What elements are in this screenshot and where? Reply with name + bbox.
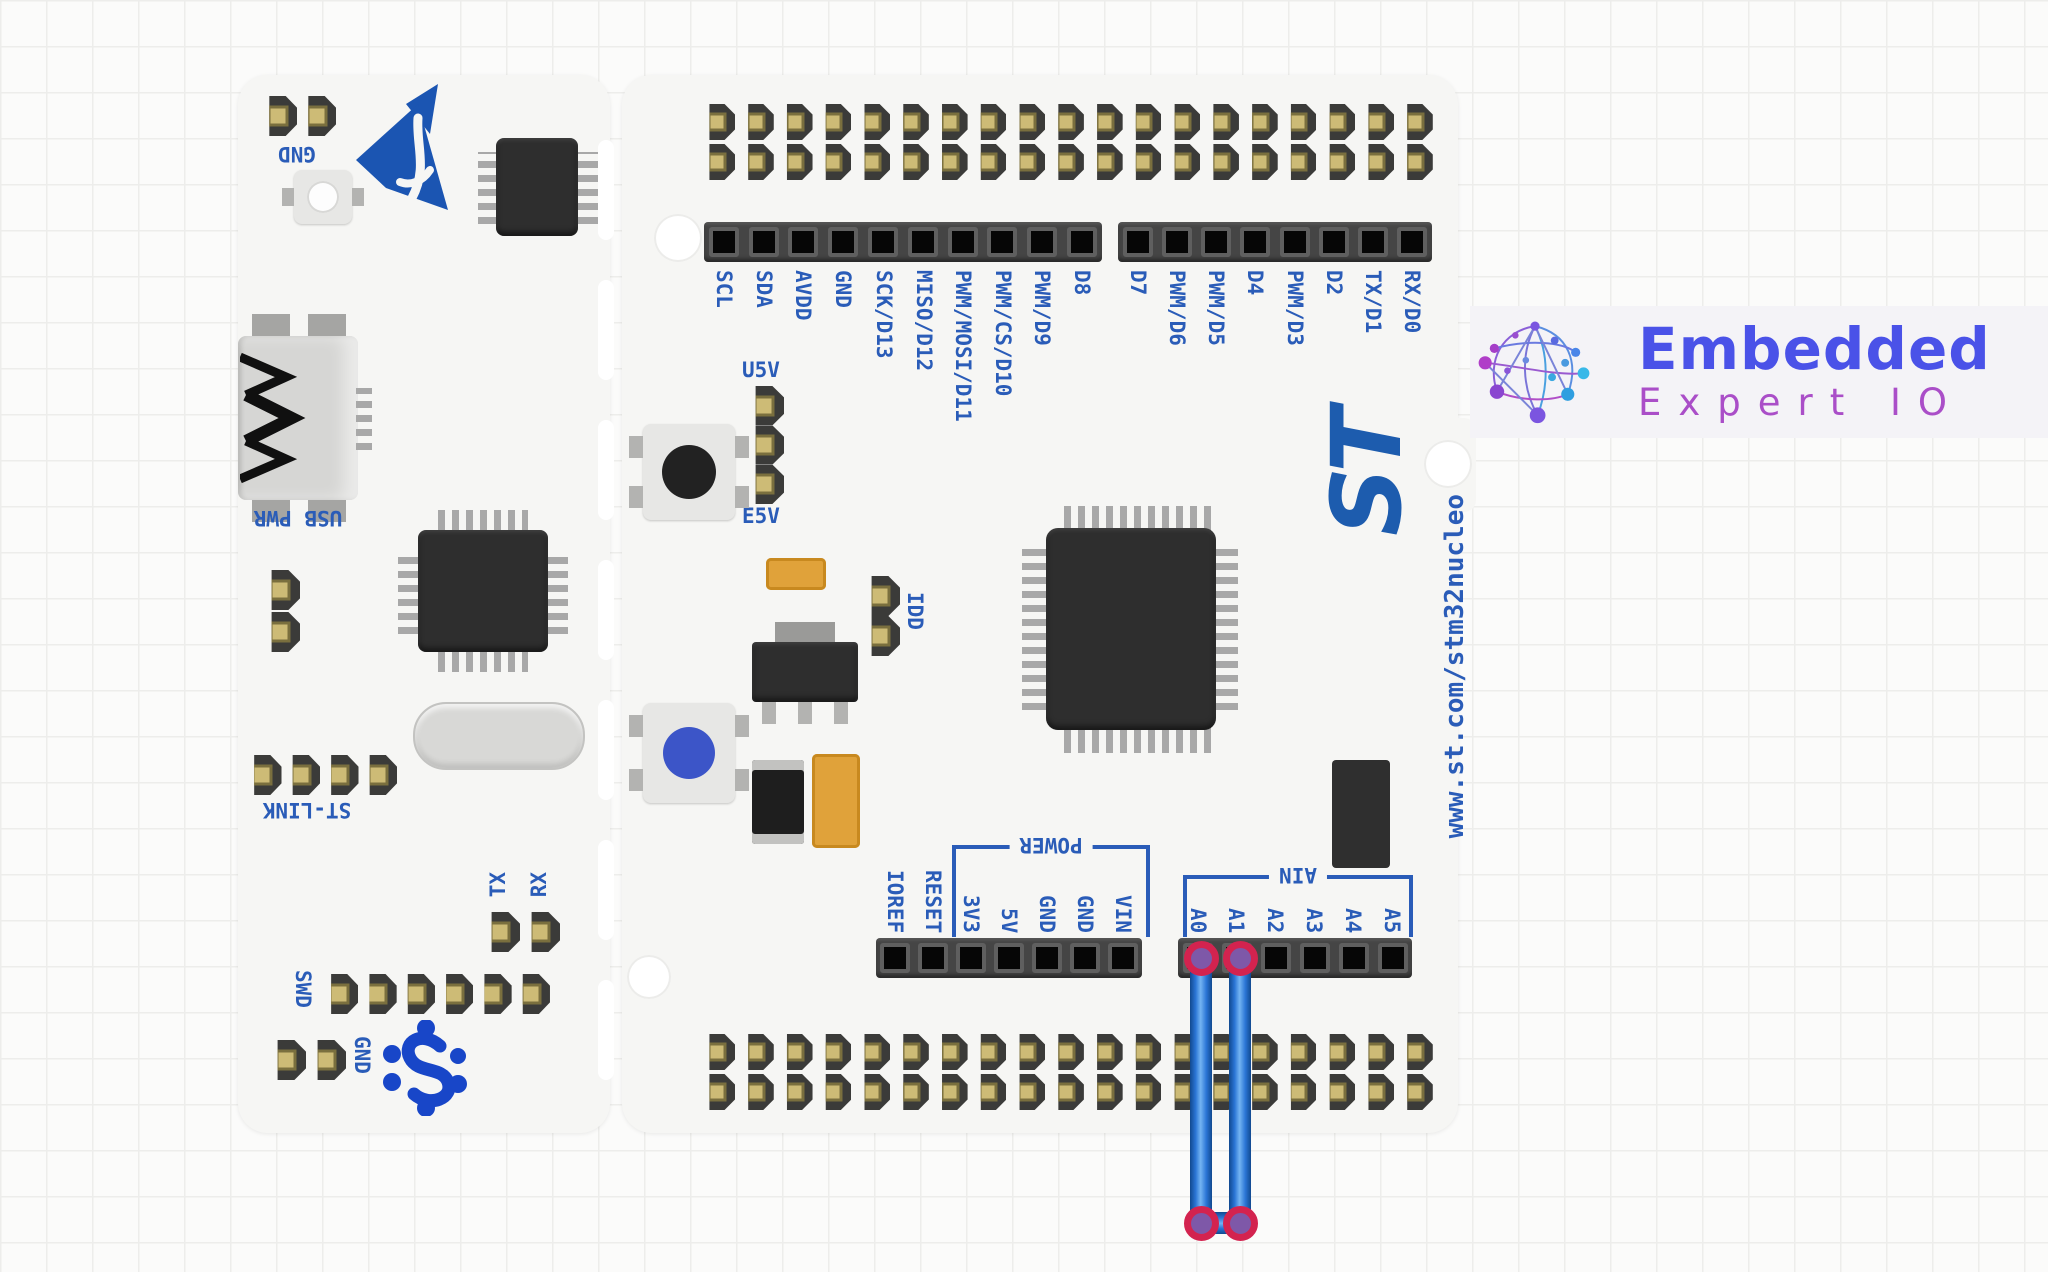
header-socket[interactable]: [1162, 227, 1192, 257]
button-pad: [735, 715, 749, 737]
pin-label-a5: A5: [1380, 908, 1404, 933]
header-pin[interactable]: [815, 1034, 851, 1070]
pin-label-d1: TX/D1: [1361, 270, 1385, 333]
rx-label: RX: [527, 872, 551, 897]
mounting-hole: [627, 955, 671, 999]
header-socket[interactable]: [1319, 227, 1349, 257]
board-perforation: [598, 980, 614, 1080]
header-pin[interactable]: [1319, 1074, 1355, 1110]
header-socket[interactable]: [1067, 227, 1097, 257]
header-pin[interactable]: [699, 104, 735, 140]
header-socket[interactable]: [749, 227, 779, 257]
brand-subtitle: Expert IO: [1638, 381, 1991, 425]
pin-label-a4: A4: [1341, 908, 1365, 933]
analog-group-bracket: AIN: [1183, 875, 1413, 937]
header-pin[interactable]: [777, 144, 813, 180]
tantalum-capacitor[interactable]: [812, 754, 860, 848]
header-pin[interactable]: [932, 1074, 968, 1110]
header-socket[interactable]: [987, 227, 1017, 257]
mounting-hole: [654, 214, 702, 262]
header-socket[interactable]: [908, 227, 938, 257]
pin-label-gnd: GND: [831, 270, 855, 308]
chip-body[interactable]: [1046, 528, 1216, 730]
header-pin[interactable]: [738, 1034, 774, 1070]
chip-body[interactable]: [496, 138, 578, 236]
user-button[interactable]: [643, 424, 735, 520]
pin-label-5v: 5V: [997, 908, 1021, 933]
pin-label-d13: SCK/D13: [872, 270, 896, 359]
regulator-body[interactable]: [752, 642, 858, 702]
header-pin[interactable]: [699, 144, 735, 180]
header-pin[interactable]: [970, 144, 1006, 180]
header-socket[interactable]: [788, 227, 818, 257]
header-pin[interactable]: [243, 755, 282, 795]
header-socket[interactable]: [709, 227, 739, 257]
board-perforation: [598, 420, 614, 520]
usb-body[interactable]: [238, 336, 358, 500]
header-pin[interactable]: [1358, 1034, 1394, 1070]
pin-label-d6: PWM/D6: [1165, 270, 1189, 346]
header-pin[interactable]: [1280, 104, 1316, 140]
header-pin[interactable]: [480, 912, 520, 952]
tx-label: TX: [486, 872, 510, 897]
header-socket[interactable]: [828, 227, 858, 257]
header-pin[interactable]: [358, 974, 396, 1014]
swd-label: SWD: [291, 970, 315, 1008]
usb-pwr-label: USB PWR: [242, 506, 354, 530]
header-socket[interactable]: [1123, 227, 1153, 257]
header-pin[interactable]: [854, 144, 890, 180]
header-pin[interactable]: [397, 974, 435, 1014]
header-socket[interactable]: [948, 227, 978, 257]
header-pin[interactable]: [893, 144, 929, 180]
pin-label-vin: VIN: [1111, 895, 1135, 933]
pin-label-reset: RESET: [921, 870, 945, 933]
pin-label-avdd: AVDD: [791, 270, 815, 321]
stlink-reset-button[interactable]: [294, 170, 352, 224]
header-pin[interactable]: [893, 104, 929, 140]
pin-label-a2: A2: [1263, 908, 1287, 933]
pin-label-a3: A3: [1302, 908, 1326, 933]
header-pin[interactable]: [306, 1040, 346, 1080]
button-pad: [735, 486, 749, 508]
header-pin[interactable]: [1087, 144, 1123, 180]
aux-header[interactable]: [260, 570, 300, 652]
s-molecule-icon: [380, 1020, 470, 1116]
swd-header[interactable]: [320, 974, 550, 1014]
header-socket[interactable]: [956, 943, 986, 973]
header-pin[interactable]: [1203, 104, 1239, 140]
header-pin[interactable]: [1319, 144, 1355, 180]
gnd-top-header[interactable]: [258, 96, 336, 136]
header-pin[interactable]: [282, 755, 321, 795]
usb-pins: [356, 388, 372, 450]
header-pin[interactable]: [854, 104, 890, 140]
button-pad: [352, 188, 364, 206]
chip-legs: [546, 550, 568, 634]
button-pad: [629, 436, 643, 458]
embedded-expert-io-logo: Embedded Expert IO: [1470, 306, 2048, 438]
header-pin[interactable]: [970, 1034, 1006, 1070]
header-pin[interactable]: [1009, 1034, 1045, 1070]
header-pin[interactable]: [699, 1034, 735, 1070]
header-pin[interactable]: [260, 570, 300, 610]
header-socket[interactable]: [880, 943, 910, 973]
chip-legs: [438, 510, 528, 532]
header-pin[interactable]: [1009, 104, 1045, 140]
header-pin[interactable]: [738, 104, 774, 140]
brand-title: Embedded: [1638, 319, 1991, 379]
idd-header[interactable]: [860, 576, 900, 656]
header-pin[interactable]: [1048, 1034, 1084, 1070]
chip-legs: [1022, 548, 1048, 710]
jumper-wire-a0[interactable]: [1190, 952, 1212, 1234]
header-pin[interactable]: [1125, 1034, 1161, 1070]
header-pin[interactable]: [1397, 1074, 1433, 1110]
header-pin[interactable]: [1048, 1074, 1084, 1110]
pin-label-d7: D7: [1126, 270, 1150, 295]
header-pin[interactable]: [970, 104, 1006, 140]
jumper-wire-a1[interactable]: [1229, 952, 1251, 1234]
pin-label-gnd1: GND: [1035, 895, 1059, 933]
header-pin[interactable]: [777, 1074, 813, 1110]
chip-legs: [576, 152, 598, 224]
board-perforation: [598, 840, 614, 940]
header-pin[interactable]: [435, 974, 473, 1014]
header-socket[interactable]: [1300, 943, 1330, 973]
header-pin[interactable]: [932, 1034, 968, 1070]
header-socket[interactable]: [1358, 227, 1388, 257]
header-socket[interactable]: [1280, 227, 1310, 257]
header-socket[interactable]: [1378, 943, 1408, 973]
smd-capacitor[interactable]: [752, 760, 804, 844]
header-pin[interactable]: [320, 974, 358, 1014]
header-pin[interactable]: [1125, 1074, 1161, 1110]
pin-label-d8: D8: [1070, 270, 1094, 295]
header-pin[interactable]: [1048, 104, 1084, 140]
regulator-leg: [834, 702, 848, 724]
morpho-header-bottom-row1[interactable]: [699, 1034, 1433, 1070]
header-socket[interactable]: [1108, 943, 1138, 973]
stlink-label: ST-LINK: [240, 798, 374, 822]
header-pin[interactable]: [854, 1074, 890, 1110]
board-perforation: [598, 560, 614, 660]
header-pin[interactable]: [815, 144, 851, 180]
pin-label-3v3: 3V3: [959, 895, 983, 933]
header-pin[interactable]: [738, 1074, 774, 1110]
header-pin[interactable]: [860, 576, 900, 616]
button-cap[interactable]: [662, 445, 716, 499]
header-pin[interactable]: [815, 1074, 851, 1110]
pin-label-d9: PWM/D9: [1030, 270, 1054, 346]
header-pin[interactable]: [1048, 144, 1084, 180]
io-header-left[interactable]: [704, 222, 1102, 262]
header-pin[interactable]: [1087, 104, 1123, 140]
header-socket[interactable]: [1397, 227, 1427, 257]
morpho-header-top-row1[interactable]: [699, 104, 1433, 140]
header-pin[interactable]: [1087, 1034, 1123, 1070]
power-group-label: POWER: [1009, 833, 1092, 857]
header-socket[interactable]: [1339, 943, 1369, 973]
header-pin[interactable]: [932, 144, 968, 180]
pin-label-a1: A1: [1224, 908, 1248, 933]
power-header[interactable]: [876, 938, 1142, 978]
morpho-header-top-row2[interactable]: [699, 144, 1433, 180]
svg-text:ST: ST: [1311, 401, 1423, 536]
header-socket[interactable]: [1032, 943, 1062, 973]
workspace-canvas[interactable]: GND USB PWR: [0, 0, 2048, 1272]
header-pin[interactable]: [699, 1074, 735, 1110]
pin-label-scl: SCL: [712, 270, 736, 308]
chip-legs: [1064, 727, 1214, 753]
header-pin[interactable]: [1397, 144, 1433, 180]
idd-label: IDD: [903, 592, 927, 630]
board-perforation: [598, 140, 614, 240]
header-pin[interactable]: [1280, 144, 1316, 180]
header-pin[interactable]: [1164, 144, 1200, 180]
header-pin[interactable]: [860, 616, 900, 656]
header-pin[interactable]: [970, 1074, 1006, 1110]
chip-legs: [398, 550, 420, 634]
header-pin[interactable]: [520, 912, 560, 952]
wire-terminal-a0[interactable]: [1184, 941, 1219, 976]
header-pin[interactable]: [1358, 144, 1394, 180]
regulator-leg: [798, 702, 812, 724]
header-pin[interactable]: [1125, 144, 1161, 180]
button-pad: [735, 769, 749, 791]
usb-tab: [308, 314, 346, 338]
header-pin[interactable]: [815, 104, 851, 140]
header-pin[interactable]: [1358, 104, 1394, 140]
usb-tab: [252, 314, 290, 338]
wire-terminal-a1[interactable]: [1223, 941, 1258, 976]
crystal-oscillator[interactable]: [413, 702, 585, 770]
analog-group-label: AIN: [1269, 863, 1327, 887]
wire-terminal-bottom-left[interactable]: [1184, 1206, 1219, 1241]
header-pin[interactable]: [1242, 104, 1278, 140]
gnd-bottom-header[interactable]: [266, 1040, 346, 1080]
morpho-header-bottom-row2[interactable]: [699, 1074, 1433, 1110]
header-pin[interactable]: [320, 755, 359, 795]
header-pin[interactable]: [893, 1074, 929, 1110]
board-url-label: www.st.com/stm32nucleo: [1440, 494, 1470, 838]
mounting-hole: [1424, 440, 1472, 488]
header-pin[interactable]: [266, 1040, 306, 1080]
button-pad: [629, 486, 643, 508]
header-pin[interactable]: [1319, 1034, 1355, 1070]
u5v-label: U5V: [742, 358, 780, 382]
pin-label-d12: MISO/D12: [912, 270, 936, 371]
header-pin[interactable]: [893, 1034, 929, 1070]
pin-label-d11: PWM/MOSI/D11: [951, 270, 975, 422]
button-cap[interactable]: [663, 727, 715, 779]
board-perforation: [598, 280, 614, 380]
power-select-header[interactable]: [744, 386, 784, 504]
button-pad: [735, 436, 749, 458]
capacitor[interactable]: [766, 558, 826, 590]
header-pin[interactable]: [1087, 1074, 1123, 1110]
header-pin[interactable]: [1397, 1034, 1433, 1070]
header-pin[interactable]: [297, 96, 336, 136]
pin-label-sda: SDA: [752, 270, 776, 308]
pin-label-ioref: IOREF: [883, 870, 907, 933]
stlink-header[interactable]: [243, 755, 397, 795]
st-logo: ST: [1308, 328, 1424, 544]
txrx-header[interactable]: [480, 912, 560, 952]
header-socket[interactable]: [1201, 227, 1231, 257]
gnd-bottom-label: GND: [350, 1036, 374, 1074]
button-pad: [282, 188, 294, 206]
header-pin[interactable]: [744, 425, 784, 464]
wire-terminal-bottom-right[interactable]: [1223, 1206, 1258, 1241]
button-pad: [629, 769, 643, 791]
header-pin[interactable]: [738, 144, 774, 180]
bird-logo-icon: [352, 82, 460, 224]
header-pin[interactable]: [744, 386, 784, 425]
header-pin[interactable]: [1164, 104, 1200, 140]
pin-label-d0: RX/D0: [1400, 270, 1424, 333]
chip-legs: [438, 650, 528, 672]
pin-label-d10: PWM/CS/D10: [991, 270, 1015, 396]
io-header-right[interactable]: [1118, 222, 1432, 262]
pin-label-gnd2: GND: [1073, 895, 1097, 933]
pin-label-d2: D2: [1322, 270, 1346, 295]
header-pin[interactable]: [777, 1034, 813, 1070]
header-pin[interactable]: [512, 974, 550, 1014]
button-pad: [629, 715, 643, 737]
pin-label-d5: PWM/D5: [1204, 270, 1228, 346]
pin-label-d3: PWM/D3: [1283, 270, 1307, 346]
header-socket[interactable]: [1027, 227, 1057, 257]
header-pin[interactable]: [1397, 104, 1433, 140]
header-pin[interactable]: [1203, 144, 1239, 180]
pin-label-d4: D4: [1243, 270, 1267, 295]
usb-contacts-icon: [240, 343, 336, 493]
header-pin[interactable]: [777, 104, 813, 140]
header-pin[interactable]: [744, 465, 784, 504]
reset-button[interactable]: [643, 703, 735, 803]
header-pin[interactable]: [1280, 1034, 1316, 1070]
header-pin[interactable]: [473, 974, 511, 1014]
button-cap[interactable]: [307, 181, 339, 213]
board-perforation: [598, 700, 614, 800]
header-pin[interactable]: [359, 755, 398, 795]
smd-component[interactable]: [1332, 760, 1390, 868]
header-pin[interactable]: [1358, 1074, 1394, 1110]
header-socket[interactable]: [868, 227, 898, 257]
header-pin[interactable]: [1125, 104, 1161, 140]
header-pin[interactable]: [854, 1034, 890, 1070]
header-pin[interactable]: [260, 612, 300, 652]
header-socket[interactable]: [1240, 227, 1270, 257]
header-socket[interactable]: [1261, 943, 1291, 973]
header-pin[interactable]: [1319, 104, 1355, 140]
network-globe-icon: [1476, 308, 1594, 436]
header-pin[interactable]: [258, 96, 297, 136]
pin-label-a0: A0: [1186, 908, 1210, 933]
header-pin[interactable]: [1280, 1074, 1316, 1110]
header-socket[interactable]: [994, 943, 1024, 973]
header-pin[interactable]: [1009, 144, 1045, 180]
header-socket[interactable]: [918, 943, 948, 973]
chip-body[interactable]: [418, 530, 548, 652]
header-pin[interactable]: [932, 104, 968, 140]
header-pin[interactable]: [1009, 1074, 1045, 1110]
header-socket[interactable]: [1070, 943, 1100, 973]
header-pin[interactable]: [1242, 144, 1278, 180]
regulator-leg: [762, 702, 776, 724]
gnd-top-label: GND: [258, 142, 336, 166]
